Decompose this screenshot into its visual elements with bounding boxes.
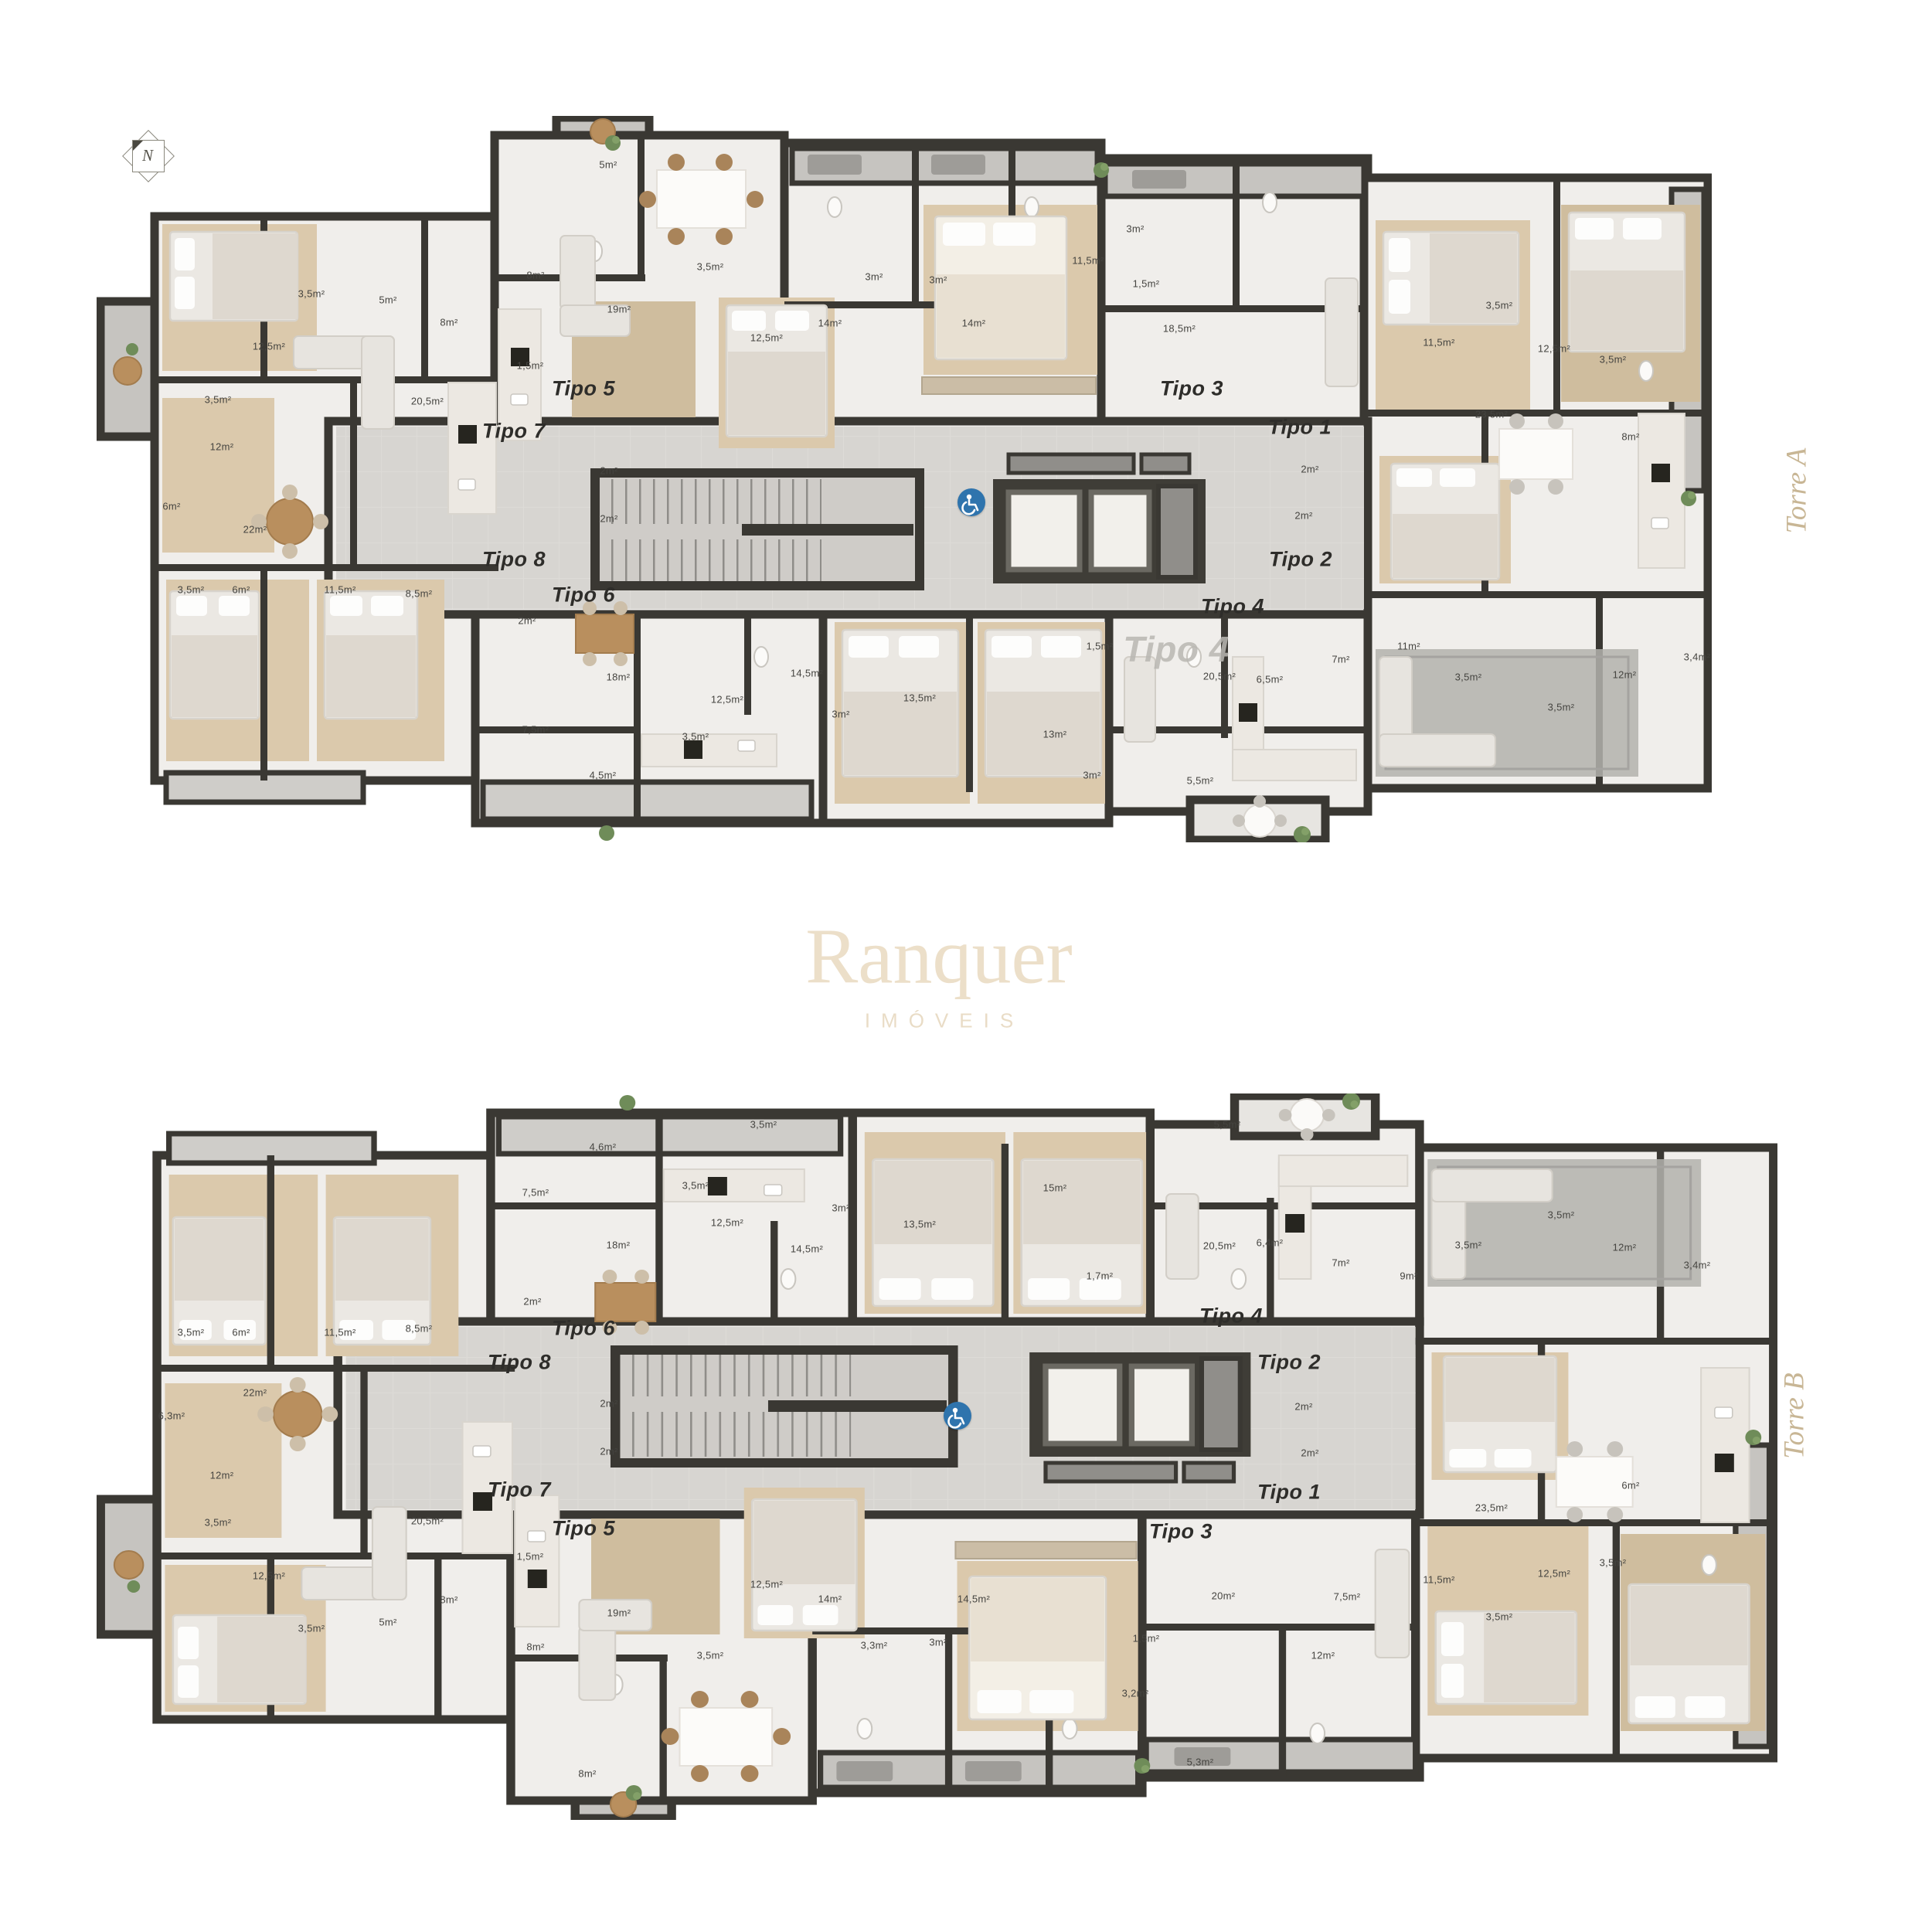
accessibility-icon bbox=[944, 1402, 971, 1430]
brand-subtitle: IMÓVEIS bbox=[805, 1009, 1073, 1033]
page: N Tipo 5Tipo 7Tipo 8Tipo 6Tipo 3Tipo 1Ti… bbox=[0, 0, 1932, 1925]
accessibility-icon bbox=[957, 488, 985, 516]
brand-name: Ranquer bbox=[805, 918, 1073, 997]
floorplan-torre-b bbox=[97, 1093, 1777, 1820]
torre-a-side-label: Torre A bbox=[1781, 448, 1814, 534]
floorplan-torre-a bbox=[97, 116, 1712, 842]
torre-b-side-label: Torre B bbox=[1778, 1372, 1811, 1458]
brand-logo: Ranquer IMÓVEIS bbox=[805, 918, 1073, 1033]
